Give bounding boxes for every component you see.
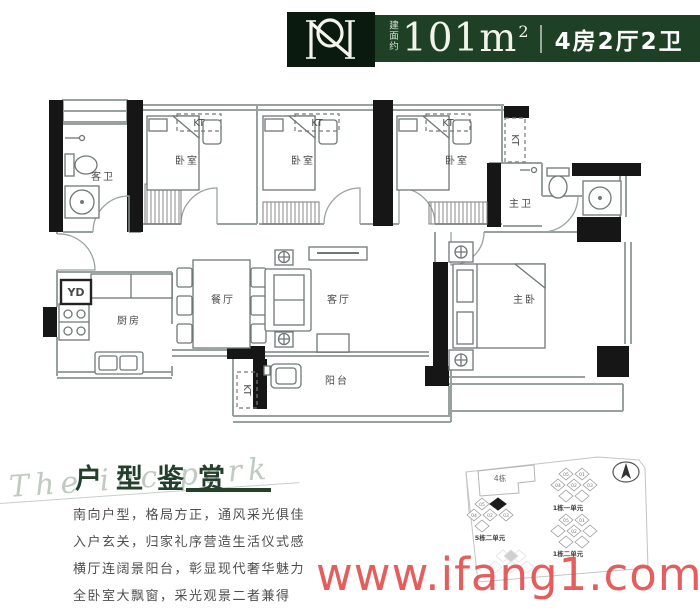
dining-label: 餐厅 [211, 293, 235, 306]
north-compass-icon [613, 462, 639, 482]
area-label: 建面约 [387, 20, 397, 58]
unit-number: 05 [479, 502, 485, 508]
ac-mark-3: KT [442, 118, 453, 129]
highlighted-unit-diamond [490, 498, 506, 510]
building-4-outline [478, 465, 535, 496]
ac-mark-5: KT [241, 384, 252, 395]
brand-monogram-icon [287, 12, 375, 67]
floorplan-page: { "header": { "area_label": "建面约", "area… [0, 0, 700, 600]
ac-mark-1: KT [193, 118, 204, 129]
description-line: 横厅连阔景阳台，彰显现代奢华魅力 [73, 556, 343, 583]
unit-number: 04 [471, 513, 477, 519]
master-bath-label: 主卫 [509, 198, 533, 210]
description-line: 全卧室大飘窗，采光观景二者兼得 [73, 583, 343, 610]
banner-divider [540, 25, 542, 53]
unit-number: 02 [571, 483, 577, 489]
unit-number: 01 [579, 472, 585, 478]
unit-number: 03 [503, 513, 509, 519]
unit-number: 02 [571, 529, 577, 535]
guest-bath-label: 客卫 [91, 170, 115, 183]
master-bedroom-label: 主卧 [513, 293, 537, 306]
unit-number: 02 [487, 513, 493, 519]
cluster-top-label: 1栋一单元 [553, 503, 584, 512]
area-value: 101m2 [402, 19, 530, 58]
unit-number: 01 [579, 518, 585, 524]
ac-mark-4: KT [509, 134, 520, 145]
kitchen-label: 厨房 [117, 314, 141, 327]
watermark: www.ifang1.com [316, 548, 700, 601]
unit-number: 04 [555, 483, 561, 489]
bedroom1-label: 卧室 [175, 154, 199, 167]
laundry-mark: YD [66, 286, 84, 299]
furniture [59, 116, 621, 388]
description-line: 南向户型，格局方正，通风采光俱佳 [73, 502, 343, 529]
ac-mark-2: KT [311, 118, 322, 129]
cluster-left-label: 5栋二单元 [475, 533, 506, 542]
area-superscript: 2 [518, 22, 529, 41]
title-underline [186, 488, 271, 492]
unit-number: 05 [563, 518, 569, 524]
building-4-label: 4栋 [494, 473, 507, 483]
bedroom2-label: 卧室 [291, 154, 315, 167]
unit-number: 03 [587, 483, 593, 489]
header-banner: 建面约 101m2 4房2厅2卫 [375, 15, 700, 62]
brand-logo [287, 12, 375, 67]
balcony-label: 阳台 [325, 374, 349, 387]
apartment-description: 南向户型，格局方正，通风采光俱佳 入户玄关，归家礼序营造生活仪式感 横厅连阔景阳… [73, 502, 343, 610]
layout-text: 4房2厅2卫 [555, 22, 684, 56]
floorplan-drawing: 客卫 卧室 卧室 卧室 主卫 主卧 厨房 餐厅 客厅 阳台 KT KT KT K… [37, 84, 647, 446]
living-label: 客厅 [327, 293, 351, 306]
bedroom3-label: 卧室 [445, 154, 469, 167]
unit-number: 05 [563, 472, 569, 478]
description-line: 入户玄关，归家礼序营造生活仪式感 [73, 529, 343, 556]
